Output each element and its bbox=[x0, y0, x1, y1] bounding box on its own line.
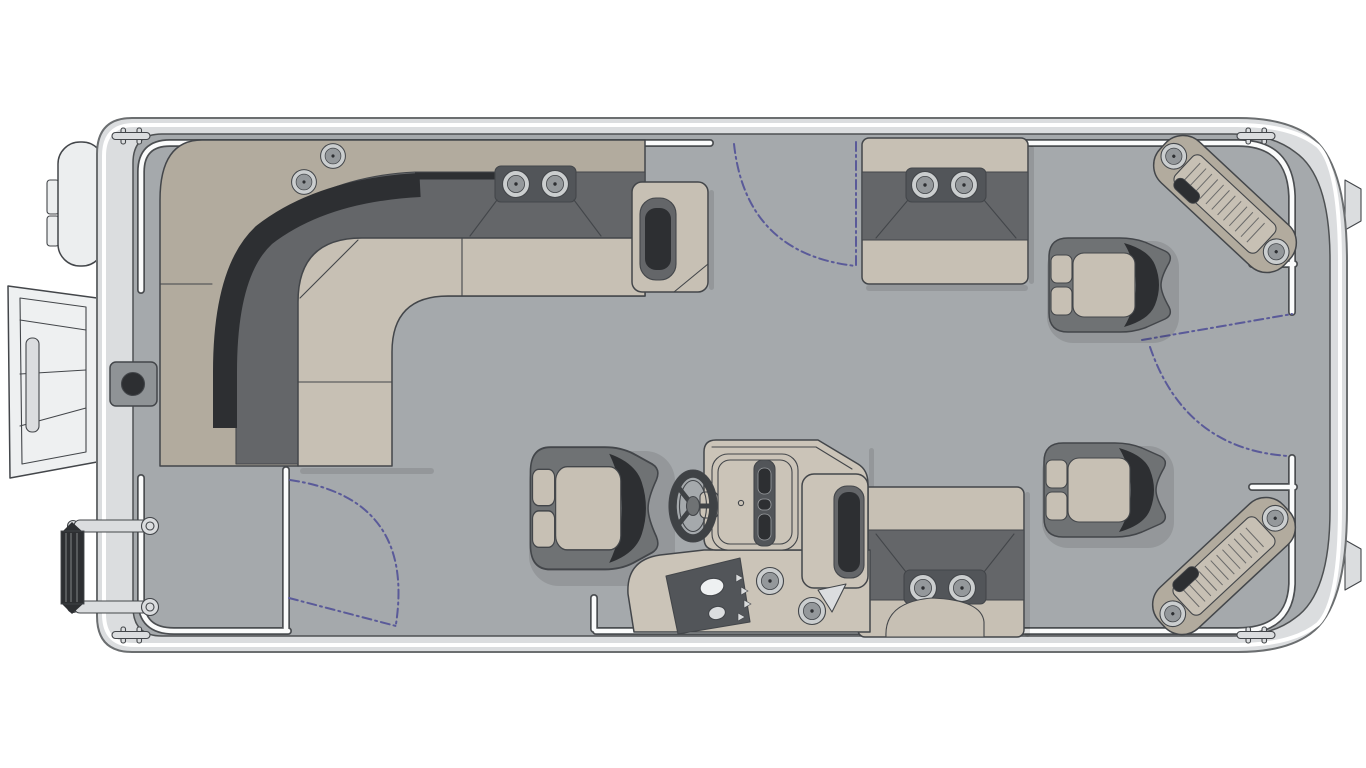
outboard-motor-pod bbox=[47, 142, 104, 266]
deck-cup-holder bbox=[321, 144, 346, 169]
cup-holder bbox=[799, 598, 826, 625]
ramp-handle bbox=[26, 338, 39, 432]
companion-chair-forward bbox=[1049, 238, 1170, 332]
lounge-end-armrest bbox=[632, 182, 708, 292]
cup-holder bbox=[910, 575, 937, 602]
captain-chair bbox=[530, 447, 657, 569]
aft-bench bbox=[858, 487, 1024, 637]
boarding-ramp-open bbox=[8, 286, 97, 478]
pontoon-floorplan-diagram bbox=[0, 0, 1366, 768]
boat-floorplan-canvas bbox=[0, 0, 1366, 768]
cup-holder bbox=[949, 575, 976, 602]
deck-cup-holder bbox=[292, 170, 317, 195]
forward-bench bbox=[862, 138, 1028, 284]
table-mount-base bbox=[110, 362, 157, 406]
cup-holder bbox=[951, 172, 978, 199]
cup-holder bbox=[757, 568, 784, 595]
cup-holder bbox=[912, 172, 939, 199]
cup-holder bbox=[542, 171, 569, 198]
companion-chair-aft bbox=[1044, 443, 1165, 537]
cup-holder bbox=[503, 171, 530, 198]
steering-wheel bbox=[669, 470, 718, 542]
gauge-slots bbox=[758, 468, 771, 540]
